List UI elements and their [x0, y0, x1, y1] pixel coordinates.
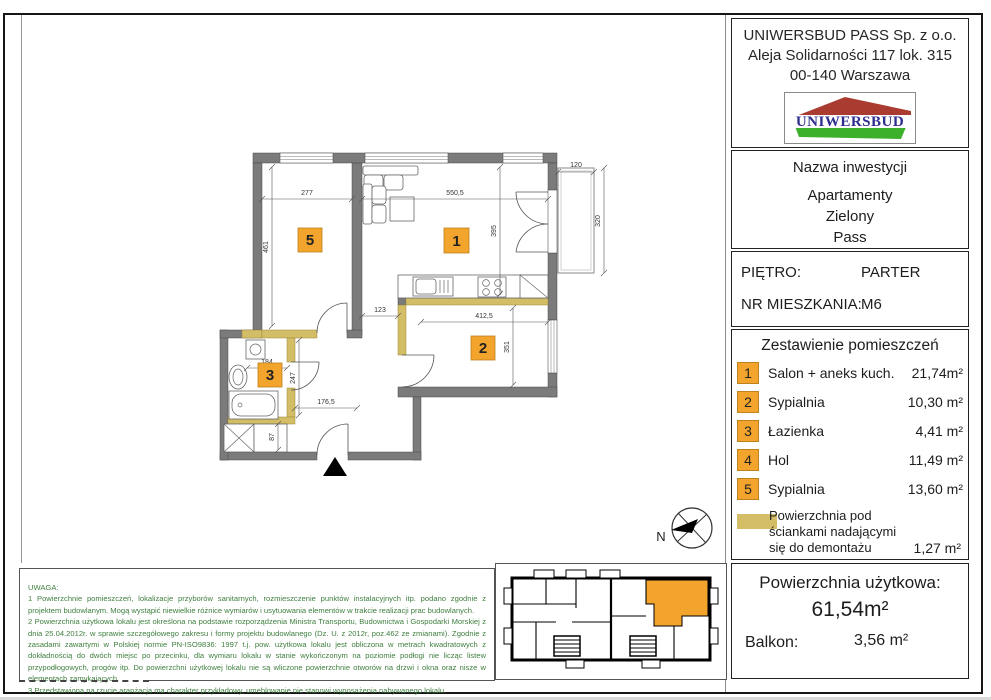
investment-name-line3: Pass: [732, 227, 968, 248]
dim-balcony-height: 320: [595, 165, 607, 276]
room-chip-3: 3: [258, 363, 282, 387]
table-row: 4 Hol 11,49 m²: [737, 448, 963, 471]
room-name: Sypialnia: [768, 481, 825, 497]
balcony-label: Balkon:: [745, 634, 798, 652]
svg-text:550,5: 550,5: [446, 190, 464, 197]
entrance-arrow: [323, 457, 347, 476]
dim-passage: 123: [359, 307, 401, 319]
notes-dashed-border: [19, 680, 149, 682]
dim-room5-height: 461: [263, 164, 275, 329]
summary-box: Powierzchnia użytkowa: 61,54m² Balkon: 3…: [731, 563, 969, 679]
notes-solid-border: [149, 680, 495, 681]
company-logo: UNIWERSBUD: [784, 92, 916, 144]
room-number-badge: 2: [737, 391, 759, 413]
investment-box: Nazwa inwestycji Apartamenty Zielony Pas…: [731, 150, 969, 249]
svg-text:351: 351: [504, 341, 511, 353]
room-name: Salon + aneks kuch.: [768, 365, 894, 381]
unit-box: PIĘTRO: PARTER NR MIESZKANIA: M6: [731, 251, 969, 327]
company-address-line1: Aleja Solidarności 117 lok. 315: [732, 46, 968, 66]
investment-name-line2: Zielony: [732, 206, 968, 227]
note-2: 2 Powierzchnia użytkowa lokalu jest okre…: [28, 616, 486, 684]
svg-text:120: 120: [570, 162, 582, 169]
dim-hall-width: 176,5: [292, 399, 360, 411]
kitchen-counter: [398, 275, 548, 298]
table-row: 5 Sypialnia 13,60 m²: [737, 477, 963, 500]
wardrobe: [224, 424, 287, 452]
svg-text:461: 461: [263, 241, 270, 253]
room-table-title: Zestawienie pomieszczeń: [732, 337, 968, 355]
room-area: 10,30 m²: [908, 394, 963, 410]
windows: [280, 153, 557, 373]
floor-plan-sheet: 277 461 550,5 395 120 320 123 412,5 351 …: [0, 0, 991, 700]
table: [390, 197, 414, 221]
compass-needle: [671, 519, 698, 533]
svg-text:395: 395: [491, 225, 498, 237]
room-number-badge: 1: [737, 362, 759, 384]
svg-text:277: 277: [301, 190, 313, 197]
svg-text:176,5: 176,5: [317, 399, 335, 406]
compass-north-label: N: [656, 529, 665, 544]
dim-room5-width: 277: [259, 190, 355, 202]
usable-area-label: Powierzchnia użytkowa:: [732, 573, 968, 593]
usable-area-value: 61,54m²: [732, 598, 968, 622]
balcony-value: 3,56 m²: [854, 632, 908, 650]
compass: N: [656, 508, 712, 548]
room-area: 4,41 m²: [916, 423, 963, 439]
room-chip-2: 2: [471, 336, 495, 360]
notes-title: UWAGA:: [28, 582, 486, 593]
building-overview-plan: [496, 564, 726, 679]
svg-text:87: 87: [269, 433, 276, 441]
dim-room2-height: 351: [504, 305, 516, 388]
note-1: 1 Powierzchnie pomieszczeń, lokalizacje …: [28, 593, 486, 616]
svg-text:320: 320: [595, 215, 602, 227]
table-row: 3 Łazienka 4,41 m²: [737, 419, 963, 442]
room-area: 21,74m²: [912, 365, 963, 381]
room-number-badge: 3: [737, 420, 759, 442]
apartment-number-label: NR MIESZKANIA:: [741, 296, 862, 313]
company-box: UNIWERSBUD PASS Sp. z o.o. Aleja Solidar…: [731, 18, 969, 148]
floor-value: PARTER: [861, 264, 920, 281]
dim-room2-width: 412,5: [418, 313, 551, 325]
svg-text:2: 2: [479, 340, 487, 357]
note-3: 3 Przedstawiona na rzucie aranżacja ma c…: [28, 685, 486, 696]
room-table-box: Zestawienie pomieszczeń 1 Salon + aneks …: [731, 329, 969, 560]
room-name: Hol: [768, 452, 789, 468]
room-name: Sypialnia: [768, 394, 825, 410]
company-name: UNIWERSBUD PASS Sp. z o.o.: [732, 26, 968, 46]
room-chip-5: 5: [298, 228, 322, 252]
floor-label: PIĘTRO:: [741, 264, 801, 281]
room-chip-1: 1: [444, 228, 469, 253]
svg-text:123: 123: [374, 307, 386, 314]
room-name: Łazienka: [768, 423, 824, 439]
svg-text:412,5: 412,5: [475, 313, 493, 320]
table-row: 1 Salon + aneks kuch. 21,74m²: [737, 361, 963, 384]
svg-text:5: 5: [306, 232, 314, 249]
balcony: [558, 168, 594, 273]
investment-name-line1: Apartamenty: [732, 185, 968, 206]
legend-text: Powierzchnia pod ściankami nadającymi si…: [769, 508, 896, 556]
apartment-number-value: M6: [861, 296, 882, 313]
furniture: [224, 166, 548, 452]
building-overview-box: [495, 563, 727, 680]
room-number-badge: 4: [737, 449, 759, 471]
room-area: 11,49 m²: [909, 452, 963, 468]
logo-wordmark: UNIWERSBUD: [796, 114, 904, 130]
legend-area-value: 1,27 m²: [914, 540, 961, 556]
notes-box: UWAGA: 1 Powierzchnie pomieszczeń, lokal…: [19, 568, 495, 680]
svg-text:3: 3: [266, 367, 274, 384]
room-area: 13,60 m²: [908, 481, 963, 497]
table-row: 2 Sypialnia 10,30 m²: [737, 390, 963, 413]
room-number-badge: 5: [737, 478, 759, 500]
svg-text:1: 1: [452, 233, 460, 250]
investment-label: Nazwa inwestycji: [732, 159, 968, 176]
company-address-line2: 00-140 Warszawa: [732, 66, 968, 86]
svg-text:247: 247: [290, 372, 297, 384]
